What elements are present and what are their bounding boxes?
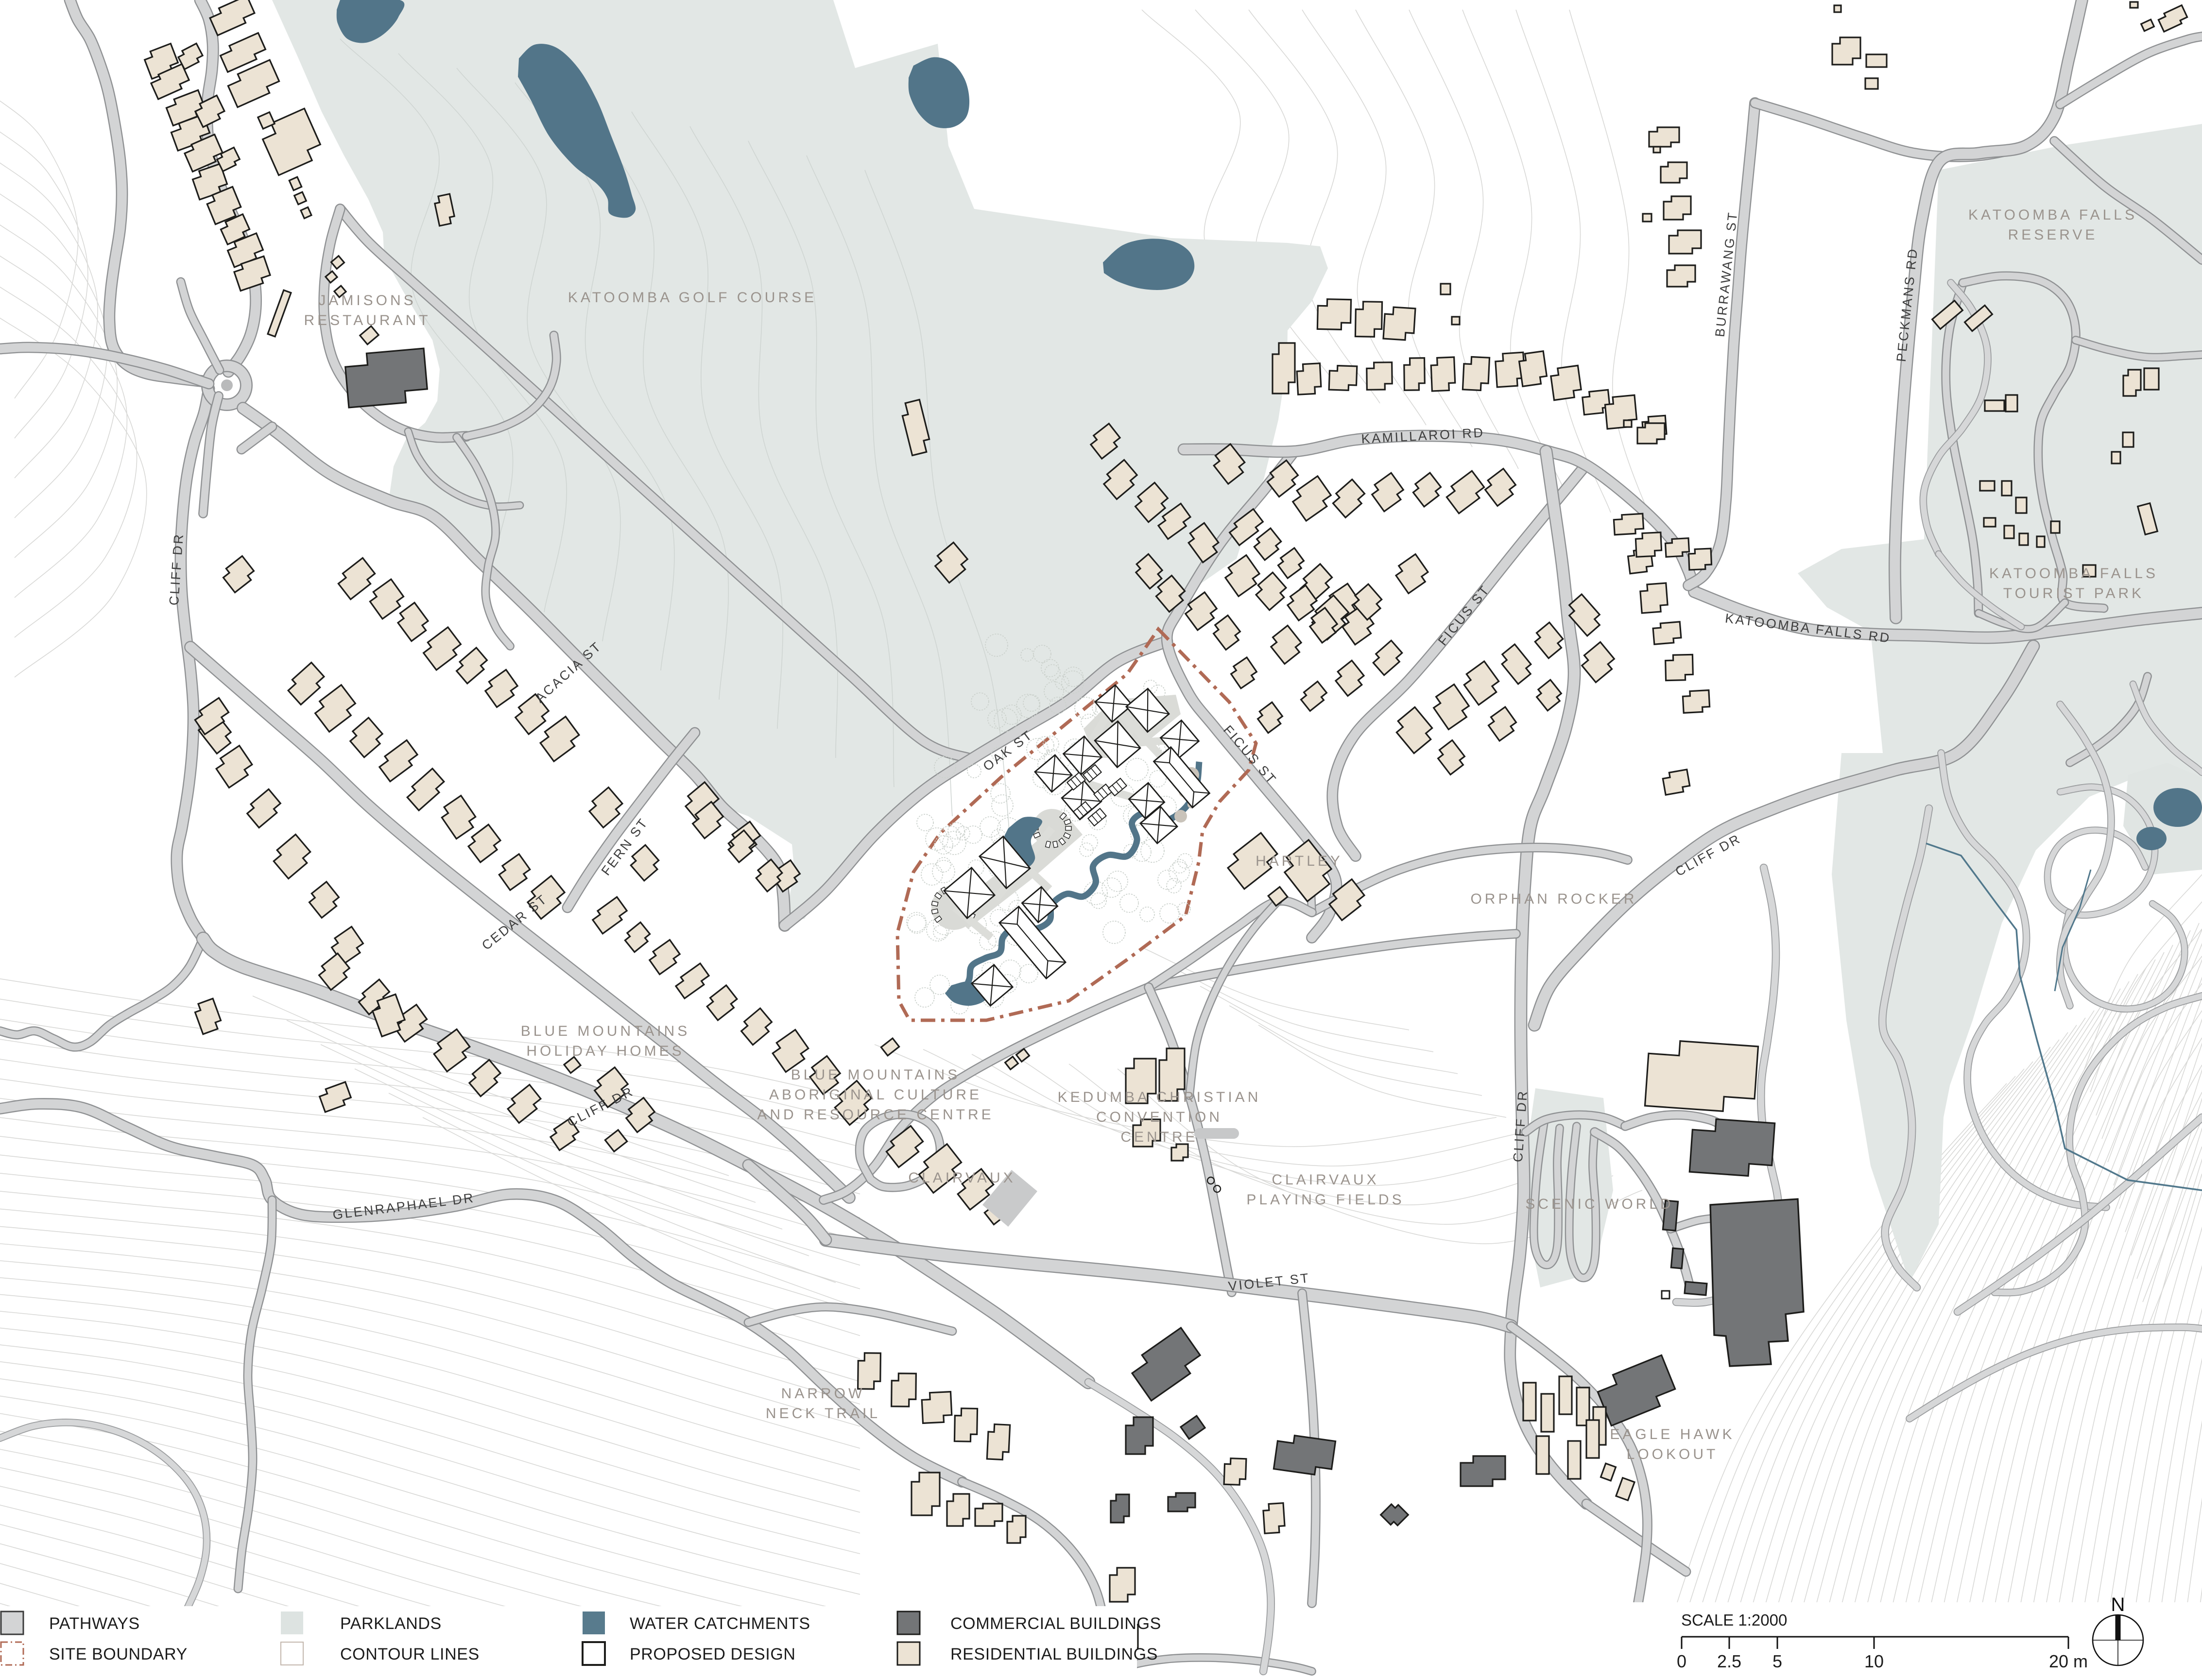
svg-text:TOURIST PARK: TOURIST PARK: [2003, 585, 2144, 601]
svg-text:RESERVE: RESERVE: [2008, 227, 2098, 243]
svg-text:PLAYING FIELDS: PLAYING FIELDS: [1246, 1192, 1404, 1208]
svg-text:KATOOMBA FALLS: KATOOMBA FALLS: [1968, 207, 2137, 223]
svg-text:CONTOUR LINES: CONTOUR LINES: [340, 1645, 480, 1663]
svg-text:CLAIRVAUX: CLAIRVAUX: [1272, 1172, 1379, 1188]
svg-text:RESTAURANT: RESTAURANT: [304, 312, 430, 328]
svg-text:KATOOMBA FALLS: KATOOMBA FALLS: [1989, 566, 2158, 582]
svg-text:KATOOMBA GOLF COURSE: KATOOMBA GOLF COURSE: [568, 290, 817, 306]
svg-text:JAMISONS: JAMISONS: [318, 292, 416, 309]
svg-text:HOLIDAY HOMES: HOLIDAY HOMES: [526, 1043, 684, 1059]
svg-text:2.5: 2.5: [1717, 1651, 1741, 1671]
svg-text:PROPOSED DESIGN: PROPOSED DESIGN: [630, 1645, 796, 1663]
svg-text:SITE BOUNDARY: SITE BOUNDARY: [49, 1645, 188, 1663]
svg-text:COMMERCIAL BUILDINGS: COMMERCIAL BUILDINGS: [950, 1614, 1161, 1633]
svg-text:PARKLANDS: PARKLANDS: [340, 1614, 442, 1633]
svg-text:5: 5: [1772, 1651, 1782, 1671]
svg-text:0: 0: [1677, 1651, 1686, 1671]
svg-text:RESIDENTIAL BUILDINGS: RESIDENTIAL BUILDINGS: [950, 1645, 1158, 1663]
svg-text:PATHWAYS: PATHWAYS: [49, 1614, 140, 1633]
svg-text:20 m: 20 m: [2049, 1651, 2088, 1671]
svg-text:CENTRE: CENTRE: [1120, 1129, 1198, 1145]
svg-text:10: 10: [1864, 1651, 1884, 1671]
svg-text:N: N: [2111, 1594, 2125, 1615]
svg-text:LOOKOUT: LOOKOUT: [1627, 1446, 1719, 1462]
svg-text:SCENIC WORLD: SCENIC WORLD: [1525, 1196, 1673, 1212]
svg-text:SCALE 1:2000: SCALE 1:2000: [1681, 1611, 1787, 1629]
svg-text:CONVENTION: CONVENTION: [1096, 1109, 1222, 1125]
svg-text:BLUE MOUNTAINS: BLUE MOUNTAINS: [791, 1067, 960, 1083]
svg-text:EAGLE HAWK: EAGLE HAWK: [1610, 1426, 1735, 1442]
svg-text:NARROW: NARROW: [781, 1386, 865, 1402]
svg-text:BLUE MOUNTAINS: BLUE MOUNTAINS: [521, 1023, 690, 1039]
svg-text:WATER CATCHMENTS: WATER CATCHMENTS: [630, 1614, 810, 1633]
svg-text:AND RESOURCE CENTRE: AND RESOURCE CENTRE: [757, 1107, 994, 1123]
svg-text:KEDUMBA CHRISTIAN: KEDUMBA CHRISTIAN: [1058, 1089, 1261, 1105]
svg-text:NECK TRAIL: NECK TRAIL: [766, 1406, 880, 1422]
svg-text:ABORIGINAL CULTURE: ABORIGINAL CULTURE: [769, 1087, 982, 1103]
svg-text:ORPHAN ROCKER: ORPHAN ROCKER: [1470, 891, 1637, 907]
svg-text:HARTLEY: HARTLEY: [1256, 853, 1343, 869]
svg-text:CLAIRVAUX: CLAIRVAUX: [908, 1170, 1015, 1186]
